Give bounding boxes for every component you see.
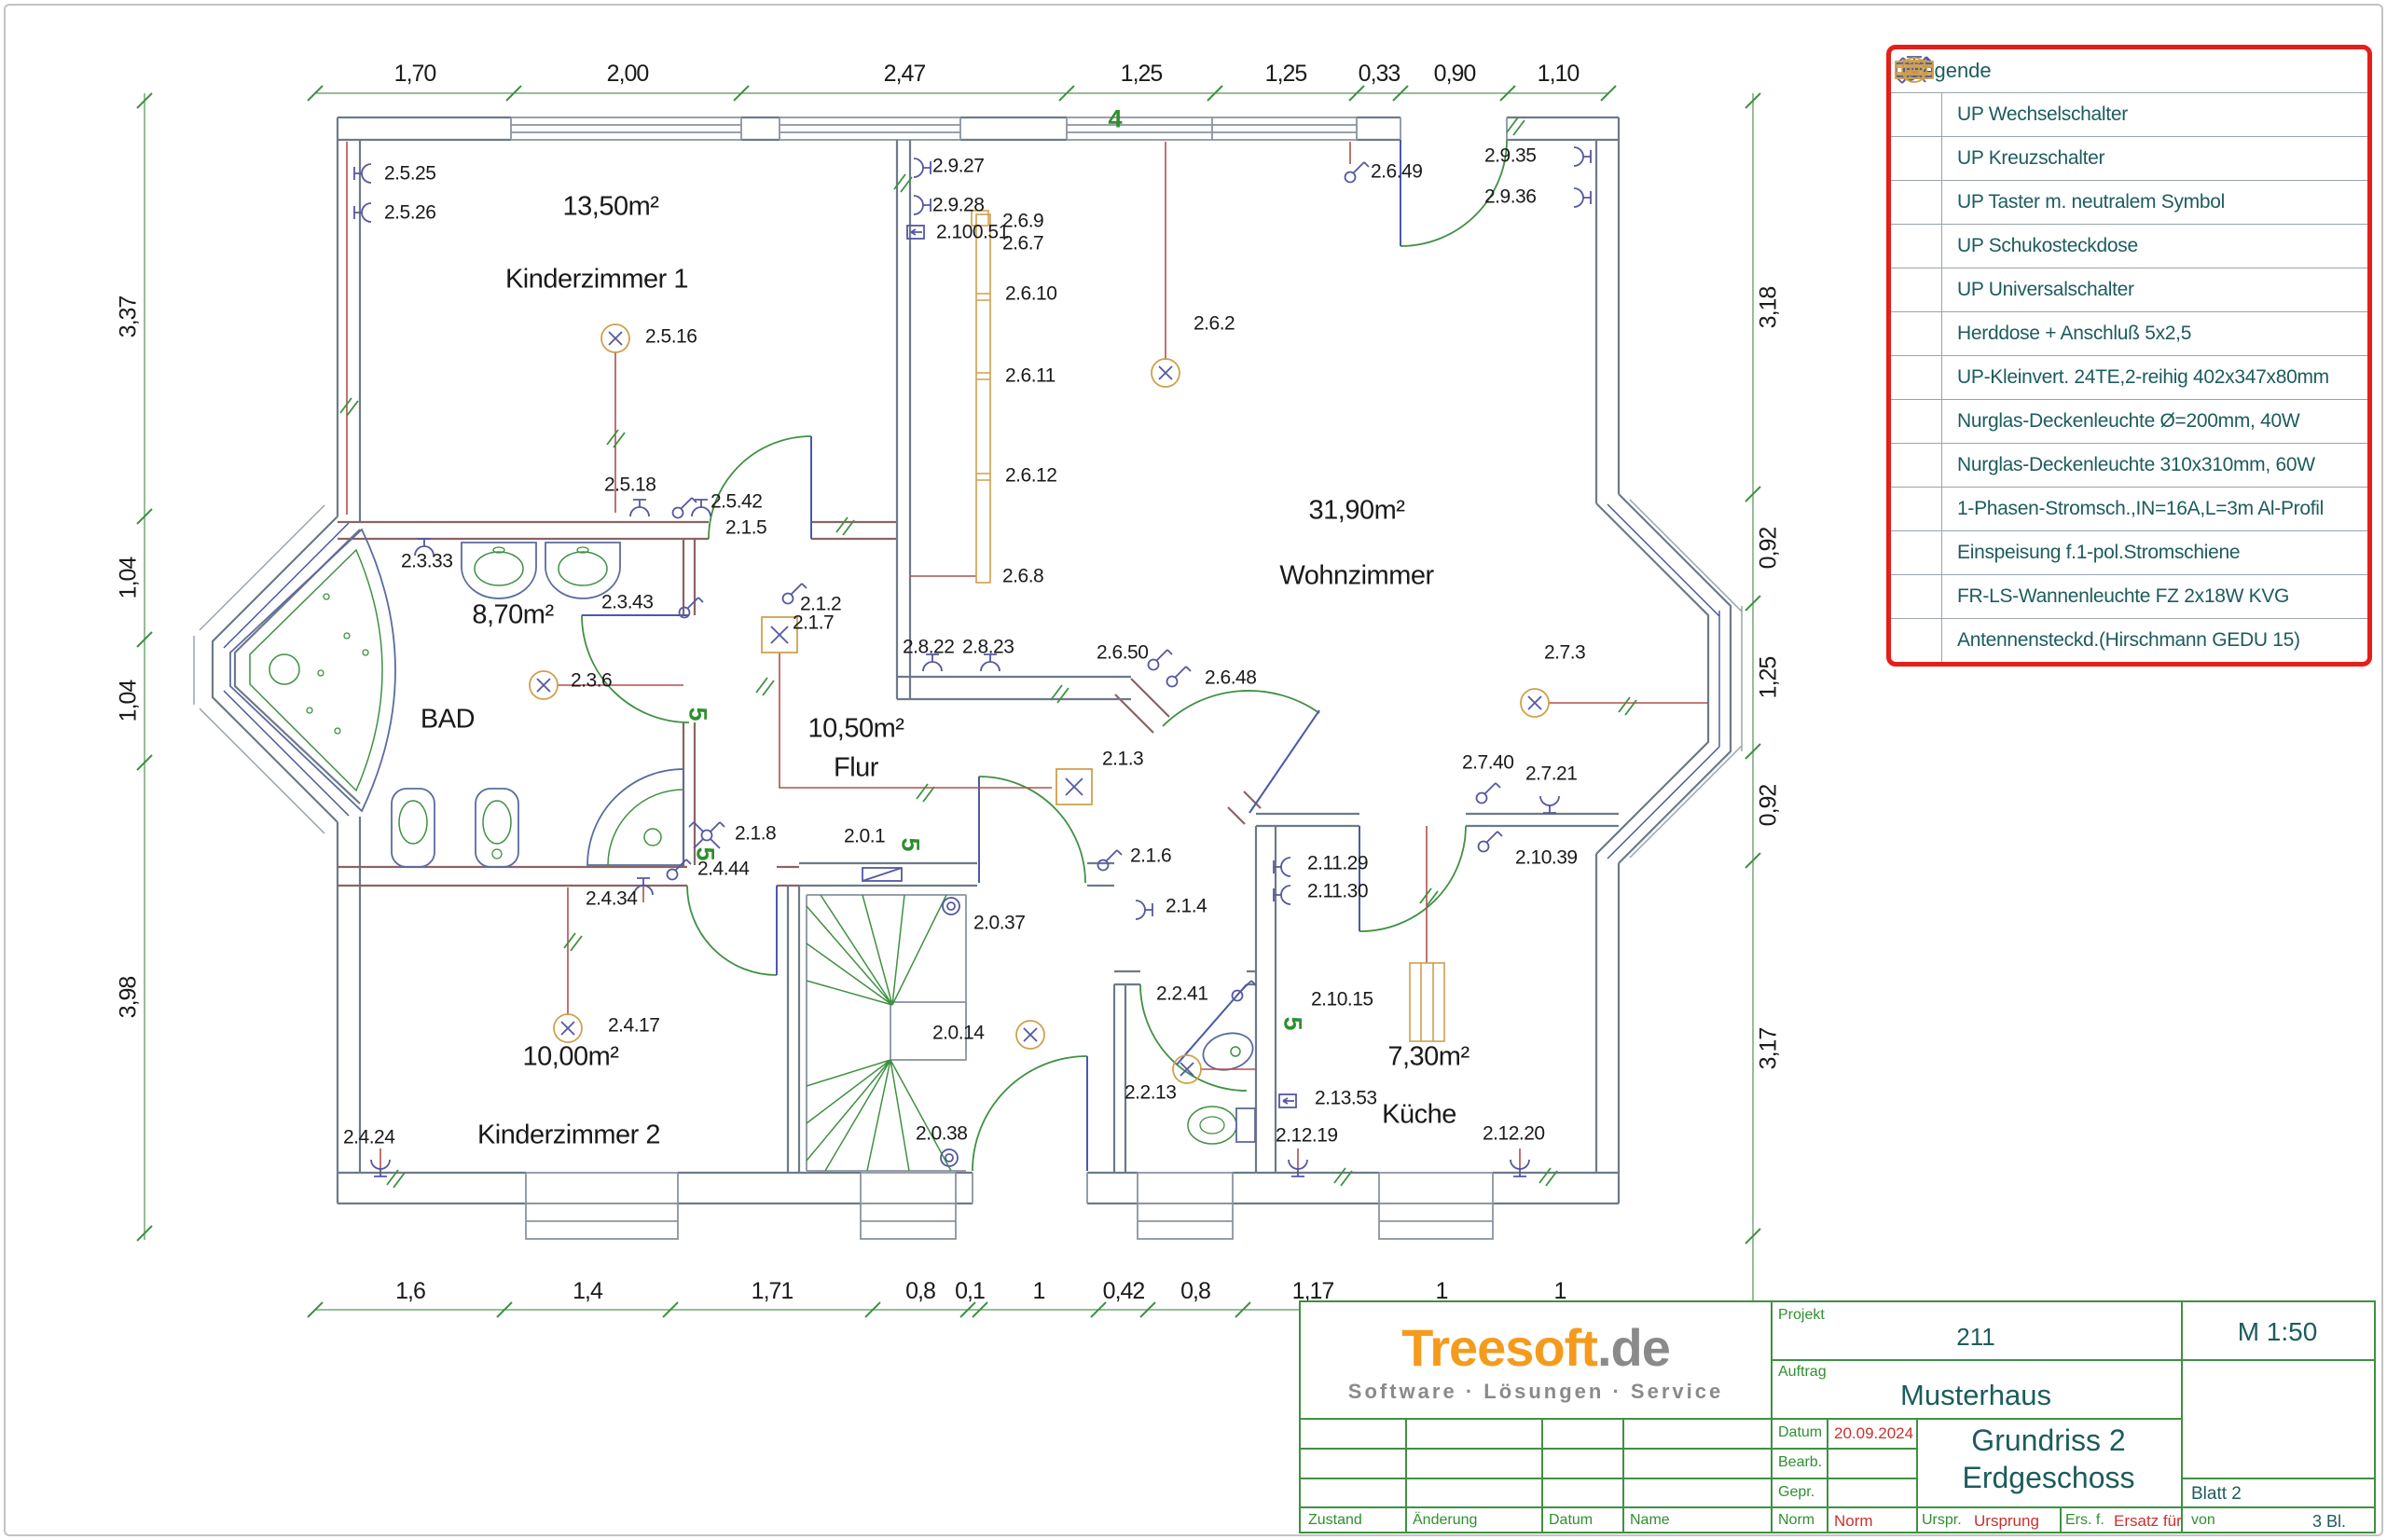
plan-label: 2.1.7 [793,613,834,633]
plan-label: 5 [898,837,923,851]
plan-label: 2.4.34 [586,889,637,909]
switch-icon [1149,650,1173,670]
legend-row: UP Schukosteckdose [1891,225,2367,268]
deckenleuchte-60w-icon [1891,444,1942,487]
plan-label: Kinderzimmer 1 [505,267,688,294]
plan-label: 8,70m² [472,602,553,629]
legend-rows: UP Wechselschalter UP Kreuzschalter UP T… [1891,93,2367,662]
plan-label: 2.6.11 [1005,366,1056,386]
projekt-label: Projekt [1778,1308,1825,1323]
socket-icon [1136,901,1152,919]
plan-label: 3,18 [1758,287,1781,329]
titleblock-line [1301,1506,2374,1508]
plan-label: 3,17 [1758,1028,1781,1070]
socket-icon [692,500,711,516]
legend-row: Einspeisung f.1-pol.Stromschiene [1891,531,2367,575]
plan-label: 0,33 [1359,62,1400,86]
plan-label: 2.10.39 [1515,848,1578,868]
ceiling-light-icon [554,1014,582,1042]
cad-floorplan-page: 2.5.252.5.2613,50m²Kinderzimmer 12.5.162… [0,0,2387,1540]
plan-label: 2.1.3 [1102,749,1143,769]
plan-label: 5 [685,707,711,721]
name-label: Name [1630,1513,1670,1528]
plan-label: 2.6.7 [1002,234,1043,254]
plan-label: 2.2.41 [1156,984,1207,1004]
plan-label: 2.5.26 [384,203,435,223]
plan-label: 2.6.48 [1205,668,1256,688]
legend-row: Nurglas-Deckenleuchte Ø=200mm, 40W [1891,400,2367,444]
socket-icon [1574,188,1591,207]
datum-label: Datum [1778,1425,1822,1440]
plan-label: Küche [1382,1102,1456,1129]
plan-label: 1,70 [394,62,436,86]
legend-row: Antennensteckd.(Hirschmann GEDU 15) [1891,619,2367,662]
aenderung-label: Änderung [1413,1513,1477,1528]
socket-icon [354,203,371,222]
plan-label: 1,25 [1265,62,1307,86]
schukosteckdose-icon [1891,225,1942,268]
plan-label: Flur [834,755,878,782]
switch-icon [1345,162,1370,183]
plan-label: 1,04 [117,681,141,722]
ceiling-light-icon [530,671,558,699]
socket-icon [914,196,931,214]
push-button-icon [943,898,959,914]
drawing-title-line2: Erdgeschoss [1916,1463,2181,1492]
urspr-value: Ursprung [1974,1513,2039,1529]
wannenleuchte-symbol [1410,963,1444,1041]
plan-label: 2.1.6 [1130,846,1171,866]
legend: Legende UP Wechselschalter UP Kreuzschal… [1886,45,2372,667]
titleblock-line [1405,1418,1407,1532]
legend-label: Nurglas-Deckenleuchte 310x310mm, 60W [1942,444,2367,487]
legend-row: Nurglas-Deckenleuchte 310x310mm, 60W [1891,444,2367,488]
legend-label: UP Universalschalter [1942,268,2367,311]
plan-label: 1,25 [1758,657,1781,699]
plan-label: 0,8 [905,1280,935,1303]
plan-label: 2.3.43 [601,593,653,612]
logo-suffix: .de [1597,1318,1670,1377]
plan-label: 2.10.15 [1311,990,1373,1010]
von-label: von [2191,1513,2215,1528]
titleblock-line [1301,1478,1916,1479]
logo-tagline: Software · Lösungen · Service [1348,1380,1723,1404]
plan-label: 2.0.37 [973,914,1025,933]
plan-label: 2.9.35 [1484,146,1536,166]
herddose-icon [1279,1094,1296,1107]
plan-label: 1,6 [395,1280,425,1303]
plan-label: 2.1.8 [735,824,776,844]
deckenleuchte-40w-icon [1891,400,1942,443]
plan-label: 2.100.51 [936,223,1009,242]
plan-label: 2.3.6 [571,671,612,691]
treesoft-logo: Treesoft.de Software · Lösungen · Servic… [1301,1302,1771,1418]
plan-label: 2.6.49 [1371,162,1422,182]
gepr-label: Gepr. [1778,1485,1814,1500]
legend-row: UP Universalschalter [1891,268,2367,312]
plan-label: 2.13.53 [1315,1089,1377,1108]
switch-icon [1479,832,1503,852]
title-block: Treesoft.de Software · Lösungen · Servic… [1299,1300,2376,1533]
plan-label: 0,8 [1180,1280,1210,1303]
plan-label: 7,30m² [1387,1044,1469,1071]
plan-label: 10,00m² [523,1044,619,1071]
legend-label: Antennensteckd.(Hirschmann GEDU 15) [1942,619,2367,662]
plan-label: 2.9.28 [932,196,984,215]
plan-label: 10,50m² [808,716,904,743]
wannenleuchte-icon [1891,575,1942,618]
kreuzschalter-icon [1891,137,1942,180]
plan-label: 2.4.24 [343,1128,394,1148]
legend-row: 1-Phasen-Stromsch.,IN=16A,L=3m Al-Profil [1891,488,2367,531]
plan-label: 2.8.23 [962,638,1014,657]
plan-label: 2.6.9 [1002,212,1043,231]
wechselschalter-icon [1891,93,1942,136]
drawing-title-line1: Grundriss 2 [1916,1425,2181,1455]
socket-icon [1574,147,1591,166]
legend-label: UP-Kleinvert. 24TE,2-reihig 402x347x80mm [1942,356,2367,399]
titleblock-line [1827,1418,1828,1532]
plan-label: 2.6.50 [1097,643,1148,663]
plan-label: 2.12.20 [1483,1124,1545,1144]
plan-label: 2.3.33 [401,552,452,571]
legend-label: 1-Phasen-Stromsch.,IN=16A,L=3m Al-Profil [1942,488,2367,530]
socket-icon [914,158,931,177]
bearb-label: Bearb. [1778,1455,1822,1470]
legend-label: Herddose + Anschluß 5x2,5 [1942,312,2367,355]
plan-label: 1,71 [752,1280,793,1303]
plan-label: 13,50m² [563,194,659,221]
zustand-label: Zustand [1308,1513,1362,1528]
plan-label: 2.7.3 [1544,643,1585,663]
stromschiene-icon [1891,488,1942,530]
plan-label: 2.6.8 [1002,567,1043,586]
blatt-value: Blatt 2 [2191,1485,2242,1503]
plan-label: 3,37 [117,296,141,338]
switch-icon [1098,850,1123,871]
plan-label: 2.6.10 [1005,284,1056,304]
legend-label: Einspeisung f.1-pol.Stromschiene [1942,531,2367,574]
kleinverteiler-icon [1891,356,1942,399]
plan-label: 31,90m² [1309,498,1405,525]
plan-label: 2.1.2 [800,595,841,614]
plan-label: 3,98 [117,977,141,1019]
plan-label: 2.7.40 [1462,753,1513,773]
socket-icon [630,500,649,516]
titleblock-line [1301,1418,2181,1420]
plan-label: 0,1 [955,1280,985,1303]
plan-label: 2.8.22 [903,638,954,657]
ceiling-light-icon [1521,689,1549,717]
plan-label: 0,42 [1103,1280,1145,1303]
herddose-icon [1891,312,1942,355]
square-light-icon [1056,769,1092,804]
von-value: 3 Bl. [2312,1513,2346,1530]
datum2-label: Datum [1549,1513,1593,1528]
ers-value: Ersatz für [2114,1513,2182,1529]
datum-value: 20.09.2024 [1834,1425,1913,1441]
plan-label: 0,92 [1758,785,1781,827]
titleblock-line [1622,1418,1624,1532]
scale-value: M 1:50 [2181,1319,2374,1345]
plan-label: 4 [1108,107,1122,132]
plan-label: 2.0.38 [916,1124,967,1144]
ceiling-light-icon [1173,1055,1201,1083]
norm-value: Norm [1834,1513,1873,1529]
norm-label: Norm [1778,1513,1814,1528]
plan-label: 2.5.18 [604,475,655,495]
auftrag-value: Musterhaus [1771,1381,2181,1409]
legend-label: FR-LS-Wannenleuchte FZ 2x18W KVG [1942,575,2367,618]
legend-title: Legende [1891,49,2367,93]
plan-label: 1 [1033,1280,1045,1303]
plan-label: 2.4.17 [608,1016,659,1036]
titleblock-line [1301,1448,1916,1450]
plan-label: 1,10 [1538,62,1580,86]
plan-label: 0,90 [1434,62,1476,86]
plan-label: 5 [693,846,718,860]
plan-label: 2.0.14 [932,1024,984,1043]
plan-label: 1,25 [1121,62,1163,86]
projekt-value: 211 [1771,1325,2181,1349]
legend-label: UP Wechselschalter [1942,93,2367,136]
switch-icon [673,498,697,518]
plan-label: 2.0.1 [844,827,885,846]
legend-label: UP Kreuzschalter [1942,137,2367,180]
plan-label: 2.5.25 [384,164,435,184]
plan-label: 2.11.29 [1307,854,1368,873]
plan-label: 2.5.42 [711,492,762,512]
ceiling-light-icon [1152,359,1180,387]
ceiling-light-icon [601,324,629,352]
legend-label: Nurglas-Deckenleuchte Ø=200mm, 40W [1942,400,2367,443]
plan-label: 2.1.4 [1166,897,1207,916]
legend-row: UP Taster m. neutralem Symbol [1891,181,2367,225]
antennensteckdose-icon [1891,619,1942,662]
plan-label: Kinderzimmer 2 [477,1122,660,1149]
legend-row: Herddose + Anschluß 5x2,5 [1891,312,2367,356]
urspr-label: Urspr. [1922,1513,1962,1528]
plan-label: 2.9.27 [932,157,984,176]
universalschalter-icon [1891,268,1942,311]
auftrag-label: Auftrag [1778,1365,1827,1380]
plan-label: 2.4.44 [697,859,749,879]
plan-label: 2.2.13 [1125,1083,1176,1103]
titleblock-line [1541,1418,1543,1532]
switch-icon [1477,783,1501,804]
plan-label: 5 [1280,1016,1305,1030]
legend-row: FR-LS-Wannenleuchte FZ 2x18W KVG [1891,575,2367,619]
plan-label: BAD [421,707,475,734]
legend-row: UP Wechselschalter [1891,93,2367,137]
plan-label: Wohnzimmer [1279,563,1433,590]
socket-icon [1540,796,1559,813]
logo-main: Treesoft [1401,1318,1597,1377]
einspeisung-icon [1891,531,1942,574]
titleblock-line [1771,1359,2374,1361]
plan-label: 2,00 [607,62,649,86]
legend-label: UP Schukosteckdose [1942,225,2367,268]
ers-label: Ers. f. [2065,1513,2104,1528]
plan-label: 0,92 [1758,528,1781,570]
legend-row: UP Kreuzschalter [1891,137,2367,181]
plan-label: 2.9.36 [1484,187,1536,207]
plan-label: 2.7.21 [1525,764,1577,784]
kleinverteiler-icon [862,868,902,881]
plan-label: 2,47 [884,62,926,86]
plan-label: 2.12.19 [1276,1126,1338,1146]
switch-icon [1167,667,1192,687]
legend-label: UP Taster m. neutralem Symbol [1942,181,2367,224]
plan-label: 2.1.5 [725,518,766,538]
socket-icon [354,164,371,183]
legend-row: UP-Kleinvert. 24TE,2-reihig 402x347x80mm [1891,356,2367,400]
plan-label: 1,4 [573,1280,602,1303]
plan-label: 2.6.2 [1193,314,1235,334]
titleblock-line [2181,1478,2374,1479]
plan-label: 1,04 [117,557,141,599]
plan-label: 2.6.12 [1005,466,1056,486]
taster-icon [1891,181,1942,224]
ceiling-light-icon [1016,1021,1044,1049]
plan-label: 2.5.16 [645,327,697,347]
plan-label: 2.11.30 [1307,882,1368,901]
stromschiene-track [972,211,1444,1041]
titleblock-line [2060,1506,2062,1532]
